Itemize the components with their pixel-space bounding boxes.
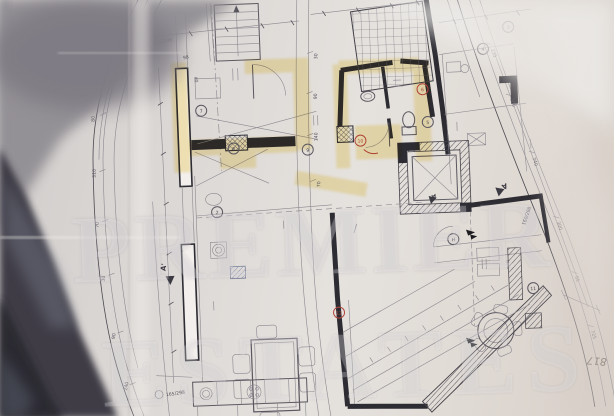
terrace-lower (341, 265, 556, 415)
section-marker-label: А' (159, 263, 168, 272)
room-tag-red: 6 (421, 87, 424, 93)
dimension-label: 70 (95, 222, 101, 228)
horizontal-crease (0, 236, 182, 239)
chair (256, 325, 276, 339)
dimension-label: 30 (101, 276, 107, 282)
room-tag: 5 (426, 120, 429, 126)
sink-icon (200, 388, 212, 400)
sink-icon (361, 91, 375, 102)
floor-plan-drawing: 165/298 98 40 165/298 160/298 440 80 310… (0, 0, 614, 416)
room-tag: 8 (232, 146, 235, 152)
photo-of-floor-plan: 165/298 98 40 165/298 160/298 440 80 310… (0, 0, 614, 416)
chair (233, 354, 251, 374)
dimension-label: 40 (192, 76, 199, 83)
chair (298, 347, 315, 367)
wall-pier (181, 244, 198, 360)
dimension-label: 90 (111, 333, 118, 339)
toilet-icon (402, 112, 415, 128)
room-tag-red: 10 (357, 139, 363, 145)
pen-arrow-mark (466, 229, 477, 239)
vertical-crease (133, 0, 149, 416)
dimension-label: 90 (313, 93, 319, 99)
window-size-label: 165/298 (166, 390, 186, 399)
dimension-label: 80 (91, 116, 97, 122)
chair (260, 412, 280, 416)
illegible-notes (205, 57, 537, 310)
room-tag: H (451, 237, 455, 243)
hatched-wall (508, 248, 523, 300)
room-tag: 11 (530, 286, 536, 292)
room-tag-red: 12 (336, 310, 342, 316)
chair (234, 379, 252, 399)
chair (299, 373, 316, 393)
shaft-blue-hatched (230, 266, 245, 279)
window-size-label: 160/298 (521, 206, 533, 226)
dimension-label: 310 (92, 169, 98, 178)
room-tag: 2 (216, 210, 219, 216)
stove-icon (247, 385, 262, 400)
corridor-dashed-line (196, 202, 424, 218)
dimension-label: 70 (316, 181, 322, 187)
dimension-label: 140 (313, 132, 319, 141)
room-tag: 7 (200, 109, 203, 115)
dimension-label: 98 (183, 54, 190, 61)
dimension-label: 30 (313, 53, 319, 59)
room-tag: 9 (306, 148, 309, 154)
fixture-oval (205, 193, 221, 206)
